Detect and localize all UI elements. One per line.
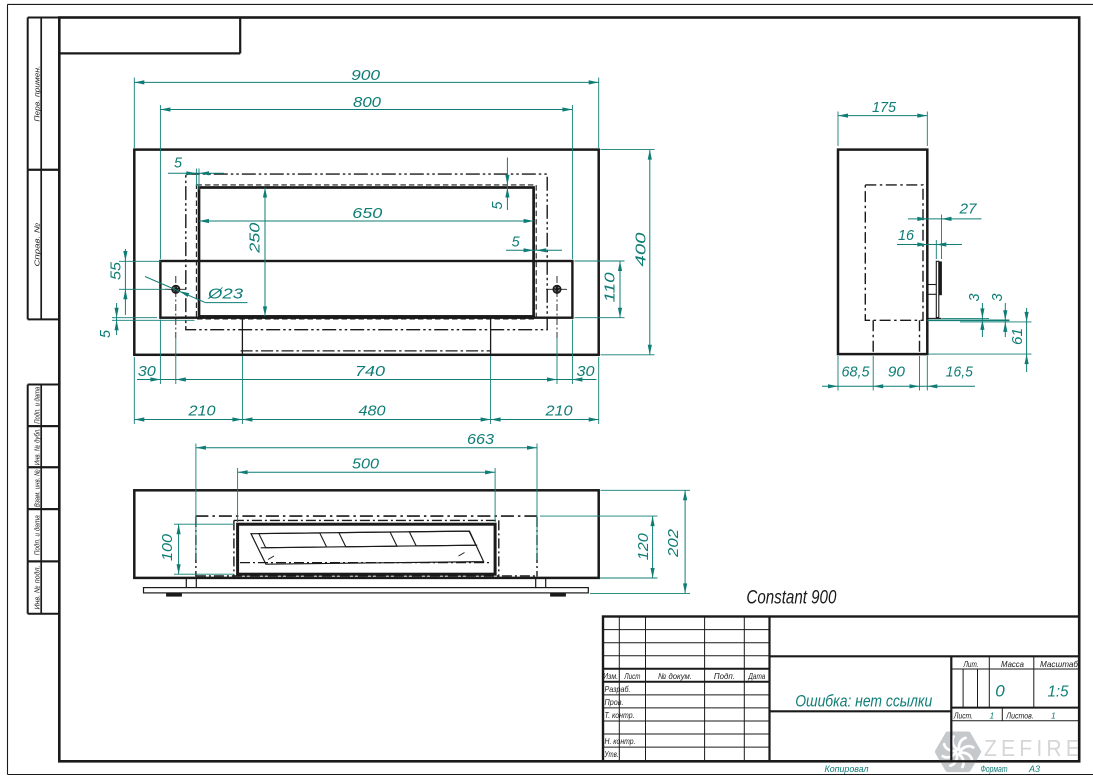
svg-text:5: 5	[489, 201, 506, 210]
svg-text:90: 90	[888, 364, 906, 381]
svg-text:16: 16	[898, 227, 915, 244]
svg-text:120: 120	[635, 533, 652, 561]
svg-text:110: 110	[601, 272, 618, 303]
svg-text:Лист: Лист	[624, 671, 641, 681]
svg-text:210: 210	[544, 403, 573, 420]
svg-text:Дата: Дата	[748, 671, 766, 681]
svg-text:Ошибка: нет ссылки: Ошибка: нет ссылки	[795, 692, 932, 711]
svg-text:68,5: 68,5	[842, 364, 871, 381]
svg-text:Формат: Формат	[981, 764, 1008, 775]
svg-text:55: 55	[108, 261, 125, 280]
svg-text:30: 30	[138, 363, 157, 380]
svg-text:202: 202	[665, 528, 682, 558]
svg-text:1: 1	[990, 711, 995, 721]
svg-text:Constant 900: Constant 900	[746, 588, 836, 609]
svg-text:400: 400	[632, 232, 649, 267]
svg-text:30: 30	[577, 363, 596, 380]
svg-text:№ докум.: № докум.	[658, 671, 692, 681]
svg-text:Изм.: Изм.	[603, 671, 618, 681]
svg-text:Ø23: Ø23	[207, 286, 244, 303]
svg-text:16,5: 16,5	[946, 364, 974, 381]
svg-text:Утв.: Утв.	[604, 749, 619, 759]
svg-text:650: 650	[352, 205, 383, 222]
svg-text:175: 175	[872, 99, 897, 116]
svg-text:27: 27	[958, 201, 977, 218]
svg-text:1:5: 1:5	[1048, 683, 1069, 700]
svg-text:Инв. № дубл.: Инв. № дубл.	[32, 428, 41, 465]
svg-text:Справ. №: Справ. №	[32, 223, 41, 267]
svg-text:100: 100	[159, 533, 176, 561]
svg-text:663: 663	[467, 431, 495, 448]
svg-text:3: 3	[966, 293, 983, 302]
svg-text:Пров.: Пров.	[605, 697, 624, 707]
svg-text:Подп. и дата: Подп. и дата	[32, 515, 41, 555]
svg-text:0: 0	[995, 681, 1005, 700]
svg-text:Масштаб: Масштаб	[1040, 660, 1079, 669]
svg-text:61: 61	[1009, 328, 1026, 345]
svg-text:Лит.: Лит.	[963, 660, 979, 669]
svg-text:480: 480	[359, 403, 387, 420]
svg-text:3: 3	[989, 293, 1006, 302]
svg-text:Листов.: Листов.	[1005, 711, 1033, 721]
svg-text:Взам. инв. №: Взам. инв. №	[32, 469, 41, 507]
svg-text:Н. контр.: Н. контр.	[605, 736, 636, 746]
svg-text:5: 5	[97, 329, 114, 338]
svg-text:Копировал: Копировал	[825, 764, 870, 775]
svg-text:250: 250	[246, 222, 263, 254]
svg-text:Перв. примен.: Перв. примен.	[32, 66, 41, 122]
svg-text:210: 210	[187, 403, 216, 420]
svg-text:900: 900	[351, 67, 381, 84]
svg-text:Подп.: Подп.	[714, 671, 735, 681]
svg-text:Лист.: Лист.	[953, 711, 973, 721]
svg-text:1: 1	[1051, 711, 1056, 721]
svg-text:А3: А3	[1028, 764, 1041, 775]
svg-text:Подп. и дата: Подп. и дата	[32, 387, 41, 424]
svg-text:500: 500	[352, 456, 380, 473]
svg-text:Масса: Масса	[1001, 660, 1025, 669]
svg-text:740: 740	[355, 363, 386, 380]
svg-text:ZEFIRE: ZEFIRE	[984, 735, 1084, 761]
svg-text:Т. контр.: Т. контр.	[605, 710, 635, 720]
svg-text:Разраб.: Разраб.	[605, 684, 631, 694]
svg-text:Инв. № подл.: Инв. № подл.	[32, 566, 41, 610]
svg-text:5: 5	[512, 234, 521, 251]
svg-text:5: 5	[174, 155, 183, 172]
svg-text:800: 800	[353, 94, 382, 111]
